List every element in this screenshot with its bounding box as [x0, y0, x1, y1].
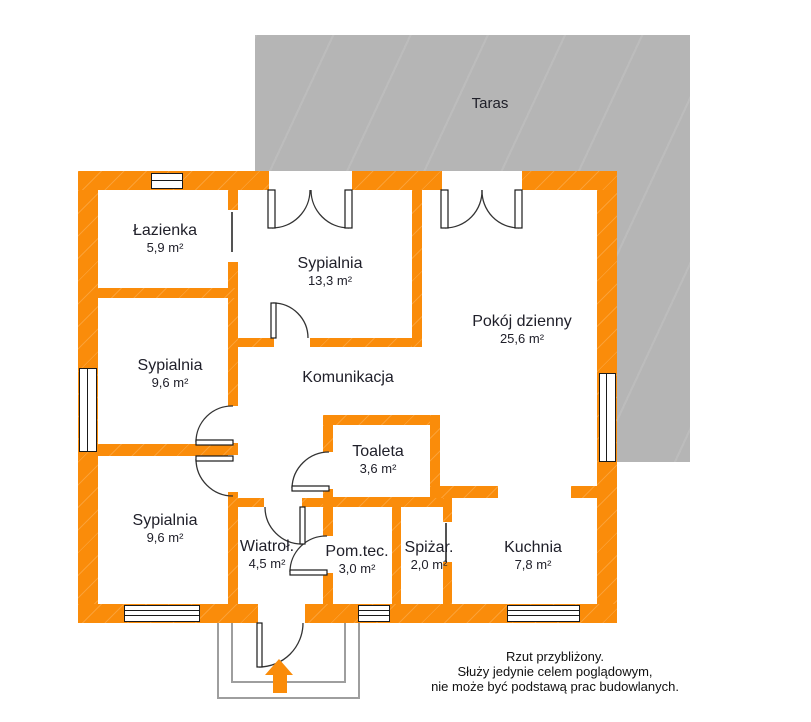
room-name: Toaleta [278, 443, 478, 461]
room-label-komunikacja: Komunikacja [248, 369, 448, 387]
room-area: 13,3 m² [230, 273, 430, 288]
room-label-pokoj-dzienny: Pokój dzienny25,6 m² [422, 313, 622, 346]
disclaimer: Rzut przybliżony.Służy jedynie celem pog… [430, 649, 680, 694]
opening-entrance [258, 604, 305, 623]
disclaimer-line: nie może być podstawą prac budowlanych. [430, 679, 680, 694]
room-label-sypialnia-1: Sypialnia13,3 m² [230, 255, 430, 288]
floor-plan-canvas: Taras [0, 0, 811, 722]
room-area: 7,8 m² [433, 557, 633, 572]
room-name: Kuchnia [433, 539, 633, 557]
wall-bathroom-south [98, 288, 238, 298]
wall-toilet-north [323, 415, 440, 425]
room-name: Pokój dzienny [422, 313, 622, 331]
room-name: Komunikacja [248, 369, 448, 387]
window-pomtec-south [358, 605, 390, 622]
room-label-toaleta: Toaleta3,6 m² [278, 443, 478, 476]
disclaimer-line: Służy jedynie celem poglądowym, [430, 664, 680, 679]
entrance-arrow-icon [265, 659, 293, 675]
room-area: 5,9 m² [65, 240, 265, 255]
wall-toilet-south [323, 497, 452, 507]
opening-bedroom3-door [228, 455, 238, 492]
window-kitchen-south [507, 605, 580, 622]
room-name: Łazienka [65, 222, 265, 240]
room-label-lazienka: Łazienka5,9 m² [65, 222, 265, 255]
opening-vestibule-door [264, 498, 302, 507]
room-area: 25,6 m² [422, 331, 622, 346]
opening-bedroom1-door [274, 338, 310, 347]
wall-bedroom1-south [238, 338, 420, 347]
room-label-sypialnia-2: Sypialnia9,6 m² [70, 357, 270, 390]
window-bathroom-north [151, 173, 183, 189]
entrance-arrow-shaft [273, 675, 287, 693]
terrace-label: Taras [390, 95, 590, 112]
room-area: 3,6 m² [278, 461, 478, 476]
window-living-east [599, 373, 616, 462]
opening-terrace-door-bedroom [269, 171, 352, 190]
window-bedroom3-south [124, 605, 200, 622]
wall-bedrooms-divider [98, 444, 238, 456]
disclaimer-line: Rzut przybliżony. [430, 649, 680, 664]
room-name: Sypialnia [70, 357, 270, 375]
room-name: Sypialnia [230, 255, 430, 273]
opening-terrace-door-living [442, 171, 522, 190]
wall-kitchen-north-east [571, 486, 598, 498]
opening-bedroom2-door [228, 406, 238, 443]
room-label-kuchnia: Kuchnia7,8 m² [433, 539, 633, 572]
wall-kitchen-north-west [430, 486, 498, 498]
room-area: 9,6 m² [70, 375, 270, 390]
room-name: Sypialnia [65, 512, 265, 530]
